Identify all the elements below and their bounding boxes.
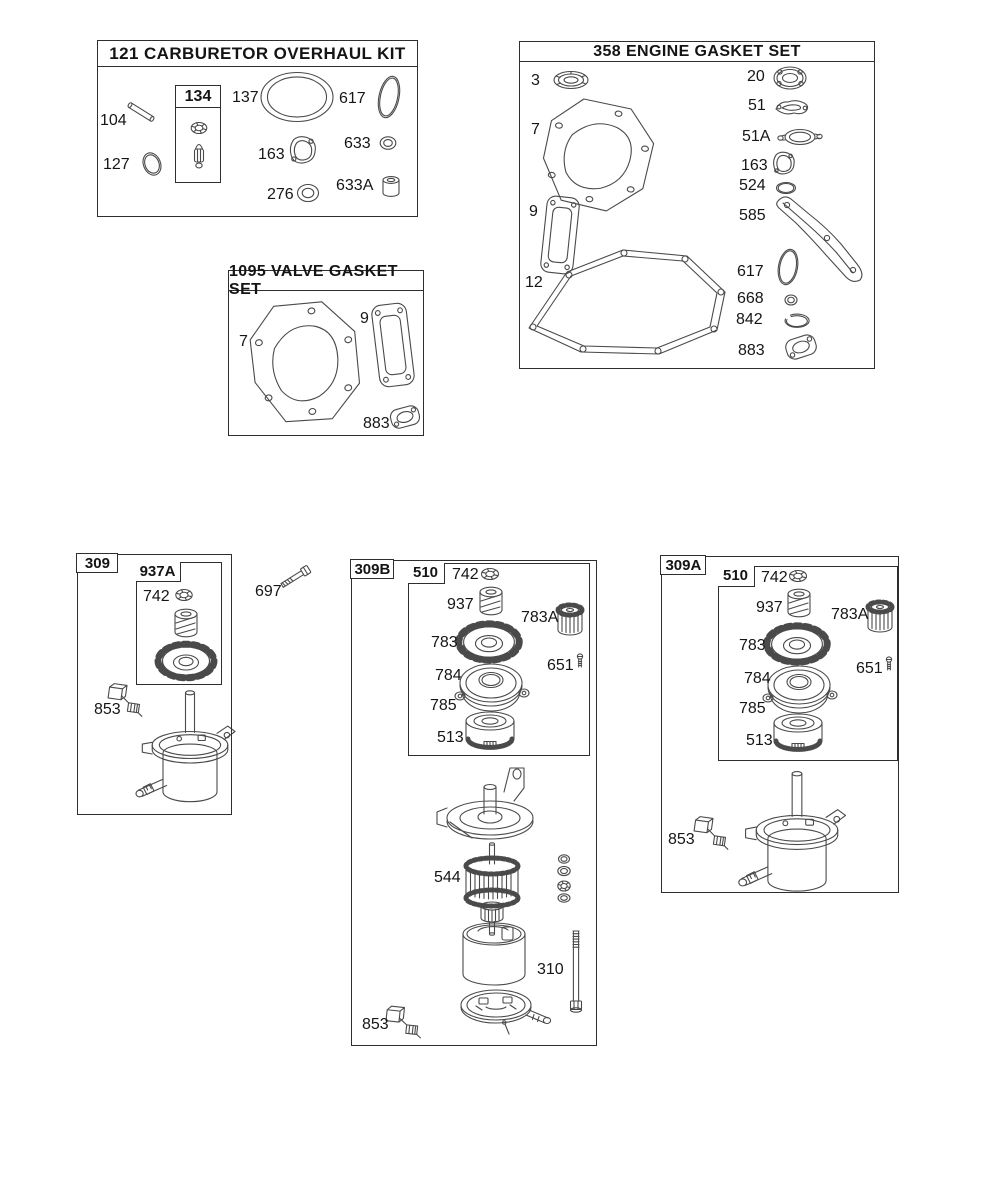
part-label-633a: 633A xyxy=(336,177,373,195)
box-engine-gasket-set-title: 358 ENGINE GASKET SET xyxy=(520,42,874,62)
inner-box-510-309b-label: 510 xyxy=(408,563,445,584)
parts-diagram-canvas: 121 CARBURETOR OVERHAUL KIT 134 358 ENGI… xyxy=(0,0,1005,1200)
part-label-668: 668 xyxy=(737,290,764,308)
part-label-617-egs: 617 xyxy=(737,263,764,281)
box-carburetor-kit-title: 121 CARBURETOR OVERHAUL KIT xyxy=(98,41,417,67)
inner-box-510-309a-label: 510 xyxy=(718,566,755,587)
part-label-585: 585 xyxy=(739,207,766,225)
part-label-651-309b: 651 xyxy=(547,657,574,675)
part-label-276: 276 xyxy=(267,186,294,204)
box-valve-gasket-set-title: 1095 VALVE GASKET SET xyxy=(229,271,423,291)
inner-box-134-label: 134 xyxy=(176,86,220,108)
part-label-842: 842 xyxy=(736,311,763,329)
part-label-853-309: 853 xyxy=(94,701,121,719)
part-label-9-egs: 9 xyxy=(529,203,538,221)
part-label-513-309a: 513 xyxy=(746,732,773,750)
part-label-651-309a: 651 xyxy=(856,660,883,678)
part-label-783a-309b: 783A xyxy=(521,609,558,627)
part-label-127: 127 xyxy=(103,156,130,174)
part-label-7-egs: 7 xyxy=(531,121,540,139)
part-label-137: 137 xyxy=(232,89,259,107)
box-engine-gasket-set: 358 ENGINE GASKET SET xyxy=(519,41,875,369)
part-label-853-309a: 853 xyxy=(668,831,695,849)
box-starter-309a-code: 309A xyxy=(660,555,706,575)
part-label-513-309b: 513 xyxy=(437,729,464,747)
part-label-742-309a: 742 xyxy=(761,569,788,587)
inner-box-937a-label: 937A xyxy=(136,562,181,582)
part-label-697: 697 xyxy=(255,583,282,601)
part-label-742-309b: 742 xyxy=(452,566,479,584)
part-label-104: 104 xyxy=(100,112,127,130)
part-label-617-carb: 617 xyxy=(339,90,366,108)
part-label-742-309: 742 xyxy=(143,588,170,606)
box-starter-309b-code: 309B xyxy=(350,559,394,579)
part-label-784-309a: 784 xyxy=(744,670,771,688)
box-valve-gasket-set: 1095 VALVE GASKET SET xyxy=(228,270,424,436)
inner-box-937a: 937A xyxy=(136,562,222,685)
part-label-937-309a: 937 xyxy=(756,599,783,617)
part-label-544: 544 xyxy=(434,869,461,887)
part-label-633: 633 xyxy=(344,135,371,153)
part-label-51: 51 xyxy=(748,97,766,115)
part-label-783a-309a: 783A xyxy=(831,606,868,624)
part-label-163-egs: 163 xyxy=(741,157,768,175)
part-label-9-vgs: 9 xyxy=(360,310,369,328)
part-label-883-vgs: 883 xyxy=(363,415,390,433)
part-label-937-309b: 937 xyxy=(447,596,474,614)
part-label-51a: 51A xyxy=(742,128,770,146)
part-label-524: 524 xyxy=(739,177,766,195)
part-label-784-309b: 784 xyxy=(435,667,462,685)
box-starter-309-code: 309 xyxy=(76,553,118,573)
part-label-883-egs: 883 xyxy=(738,342,765,360)
part-label-3: 3 xyxy=(531,72,540,90)
part-label-853-309b: 853 xyxy=(362,1016,389,1034)
part-label-7-vgs: 7 xyxy=(239,333,248,351)
part-label-310: 310 xyxy=(537,961,564,979)
part-label-785-309a: 785 xyxy=(739,700,766,718)
part-label-20: 20 xyxy=(747,68,765,86)
part-label-163-carb: 163 xyxy=(258,146,285,164)
part-label-783-309a: 783 xyxy=(739,637,766,655)
part-label-12: 12 xyxy=(525,274,543,292)
part-label-783-309b: 783 xyxy=(431,634,458,652)
inner-box-134: 134 xyxy=(175,85,221,183)
part-label-785-309b: 785 xyxy=(430,697,457,715)
